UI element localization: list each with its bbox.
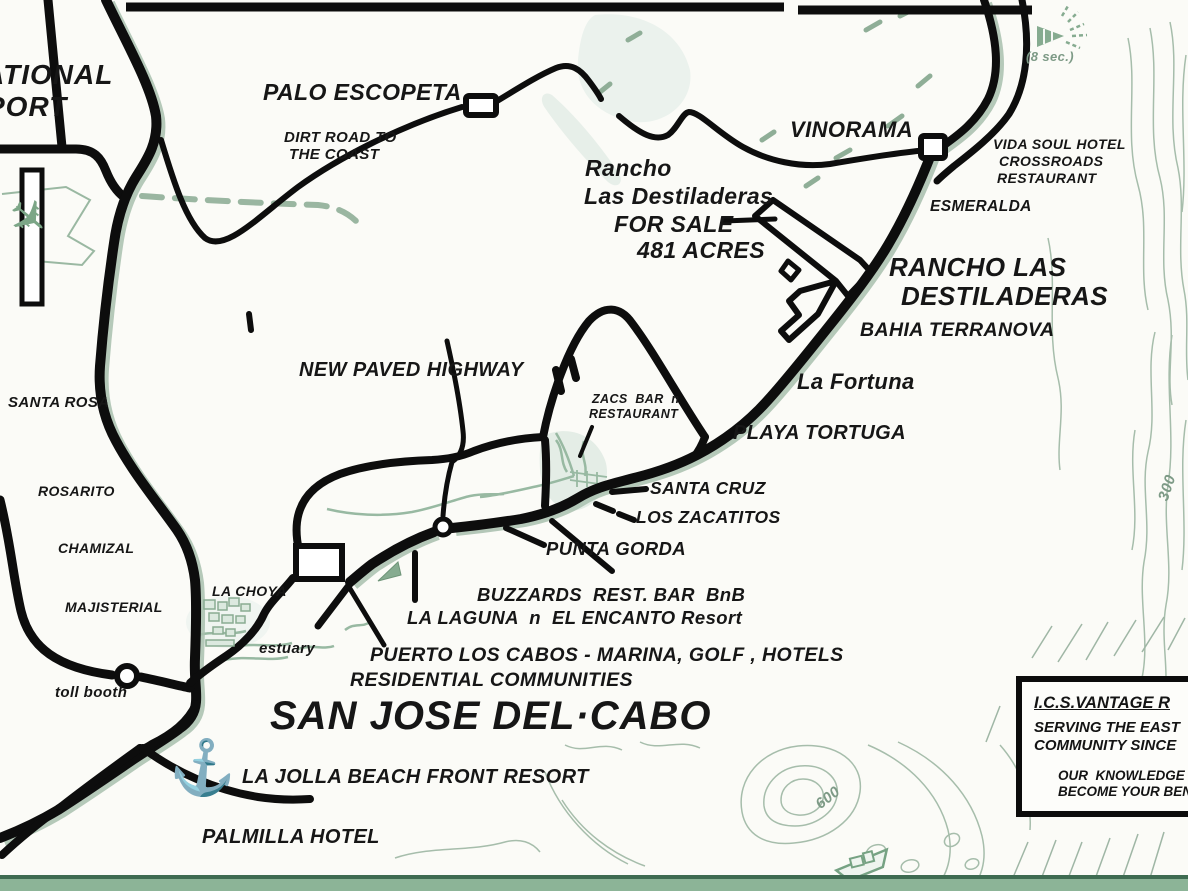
- esmeralda-label: ESMERALDA: [930, 199, 1032, 215]
- rancho-sale-label-line4: 481 ACRES: [637, 238, 765, 262]
- toll-road: [0, 500, 112, 675]
- realty-name: I.C.S.VANTAGE R: [1034, 694, 1188, 713]
- anchor-icon: ⚓: [166, 733, 241, 805]
- toll-booth-label: toll booth: [55, 685, 127, 701]
- airport-label-line1: ATIONAL: [0, 60, 113, 89]
- palo-escopeta-label: PALO ESCOPETA: [263, 80, 462, 104]
- palo-escopeta-marker: [466, 96, 496, 115]
- rancho-destiladeras-label-line1: RANCHO LAS: [889, 254, 1066, 281]
- punta-gorda-label: PUNTA GORDA: [546, 539, 686, 558]
- vida-soul-label-line2: CROSSROADS: [999, 154, 1103, 169]
- rancho-destiladeras-label-line2: DESTILADERAS: [901, 283, 1108, 310]
- coast-junction-marker: [435, 519, 451, 535]
- toll-booth-marker: [117, 666, 137, 686]
- san-jose-title: SAN JOSE DEL·CABO: [270, 695, 712, 737]
- chamizal-label: CHAMIZAL: [58, 541, 134, 556]
- realty-tagline-line1: SERVING THE EAST: [1034, 719, 1188, 737]
- bahia-terranova-label: BAHIA TERRANOVA: [860, 320, 1055, 340]
- rancho-sale-label-line3: FOR SALE: [614, 212, 733, 236]
- realty-slogan-line2: BECOME YOUR BEN: [1034, 784, 1188, 801]
- zacs-label-line1: ZACS BAR n: [592, 393, 679, 406]
- la-choya-label: LA CHOYA: [212, 584, 287, 599]
- dirt-road: [161, 107, 462, 242]
- vida-soul-label-line1: VIDA SOUL HOTEL: [993, 137, 1126, 152]
- zacs-label-line2: RESTAURANT: [589, 408, 678, 421]
- map-canvas: ✈ ⚓ ATIONAL PORT PALO ESCOPETA DIRT ROAD…: [0, 0, 1188, 891]
- palmilla-label: PALMILLA HOTEL: [202, 827, 380, 848]
- realty-slogan-line1: OUR KNOWLEDGE: [1034, 768, 1188, 785]
- vida-soul-label-line3: RESTAURANT: [997, 171, 1096, 186]
- realty-info-box: I.C.S.VANTAGE R SERVING THE EAST COMMUNI…: [1016, 676, 1188, 817]
- la-jolla-label: LA JOLLA BEACH FRONT RESORT: [242, 767, 589, 788]
- realty-tagline-line2: COMMUNITY SINCE: [1034, 737, 1188, 755]
- dirt-road-label-line2: THE COAST: [289, 147, 379, 163]
- rosarito-label: ROSARITO: [38, 484, 115, 499]
- vinorama-marker: [921, 136, 945, 158]
- shore-band: [0, 875, 1188, 891]
- puerto-los-cabos-marker: [296, 546, 342, 579]
- lighthouse-icon: [1037, 6, 1087, 48]
- santa-cruz-label: SANTA CRUZ: [650, 479, 766, 497]
- rancho-sale-label-line1: Rancho: [585, 156, 672, 180]
- santa-rosa-label: SANTA ROSA: [8, 395, 110, 411]
- vinorama-label: VINORAMA: [790, 118, 913, 141]
- new-paved-highway-label: NEW PAVED HIGHWAY: [299, 360, 524, 381]
- la-fortuna-label: La Fortuna: [797, 370, 915, 393]
- majisterial-label: MAJISTERIAL: [65, 600, 163, 615]
- puerto-los-cabos-label: PUERTO LOS CABOS - MARINA, GOLF , HOTELS: [370, 645, 844, 665]
- los-zacatitos-label: LOS ZACATITOS: [636, 508, 781, 526]
- estuary-label: estuary: [259, 641, 315, 657]
- rancho-sale-label-line2: Las Destiladeras: [584, 184, 773, 208]
- residential-label: RESIDENTIAL COMMUNITIES: [350, 670, 633, 690]
- airport-label-line2: PORT: [0, 92, 67, 121]
- main-highway: [0, 0, 196, 838]
- la-laguna-label: LA LAGUNA n EL ENCANTO Resort: [407, 608, 742, 627]
- buzzards-label: BUZZARDS REST. BAR BnB: [477, 585, 745, 604]
- beacon-interval-label: (8 sec.): [1026, 50, 1074, 64]
- dirt-road-label-line1: DIRT ROAD TO: [284, 130, 397, 146]
- playa-tortuga-label: PLAYA TORTUGA: [733, 423, 906, 444]
